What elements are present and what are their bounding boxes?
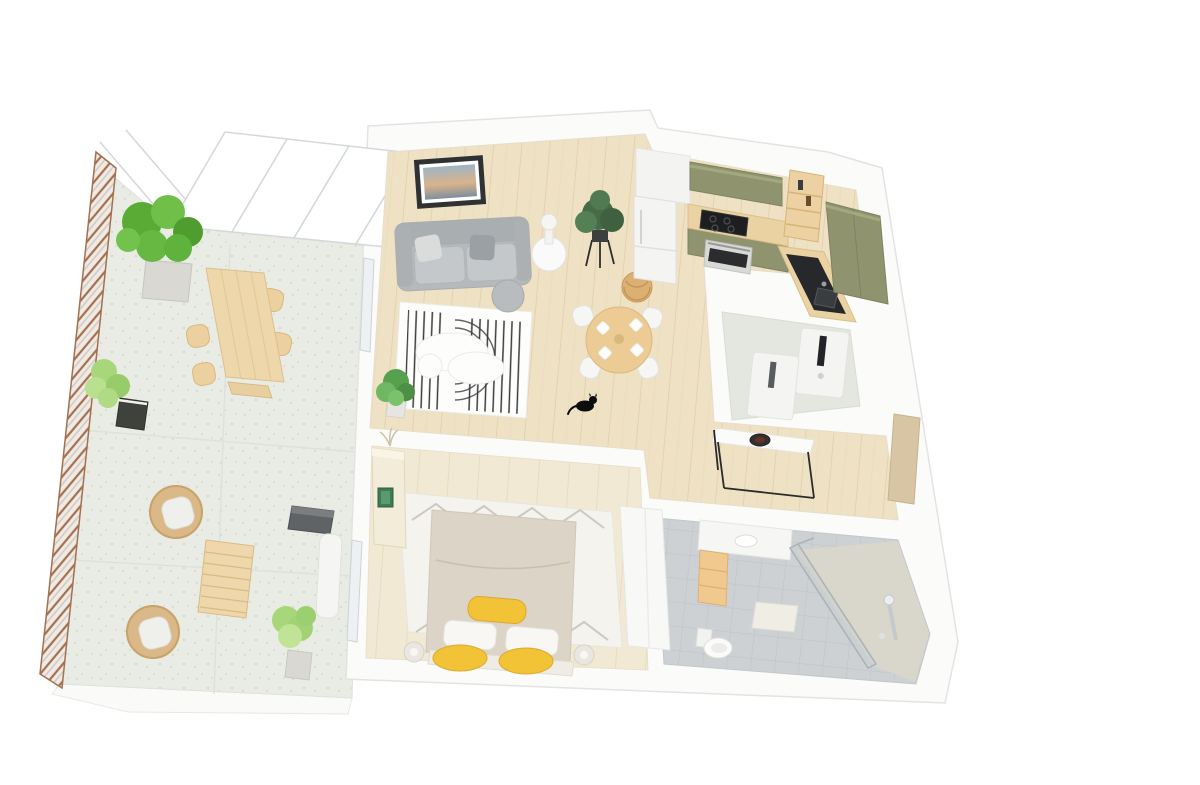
shower-head — [884, 595, 894, 605]
bottle — [806, 196, 811, 206]
bath-mat — [752, 602, 798, 632]
faucet — [822, 282, 827, 287]
round-wood-dining-table — [586, 307, 652, 373]
dryer-cabinet — [747, 352, 799, 420]
rattan-lounge-chair-1 — [150, 486, 202, 538]
ladder-bar-shelf — [784, 170, 824, 242]
floor-plan-render — [0, 0, 1200, 785]
plant-pot — [285, 650, 312, 680]
wood-drawer-unit — [698, 550, 728, 606]
sun-lounger — [316, 533, 342, 618]
olive-tall-cabinets — [826, 202, 888, 304]
floor-plan-svg — [0, 0, 1200, 785]
framed-wall-art — [417, 158, 484, 206]
fridge — [634, 196, 676, 284]
white-tall-cabinet — [636, 148, 690, 204]
washing-machine — [795, 328, 850, 399]
rattan-lounge-chair-2 — [127, 606, 179, 658]
bedside-lamp — [574, 645, 594, 665]
plant-pot — [142, 260, 192, 302]
bedside-lamp — [404, 642, 424, 662]
yellow-floor-cushion — [499, 648, 553, 674]
slatted-coffee-table — [198, 540, 254, 618]
open-door-panel — [888, 414, 920, 504]
gray-pouf — [492, 280, 524, 312]
yellow-floor-cushion — [433, 645, 487, 671]
grill — [288, 506, 334, 534]
sofa-pillow-light — [414, 234, 443, 263]
table-lamp-shade — [541, 214, 557, 230]
vanity-basin — [735, 535, 757, 547]
white-wardrobe — [620, 506, 670, 650]
bottle — [798, 180, 803, 190]
sofa-pillow-gray — [469, 234, 495, 260]
yellow-bolster — [467, 596, 527, 625]
